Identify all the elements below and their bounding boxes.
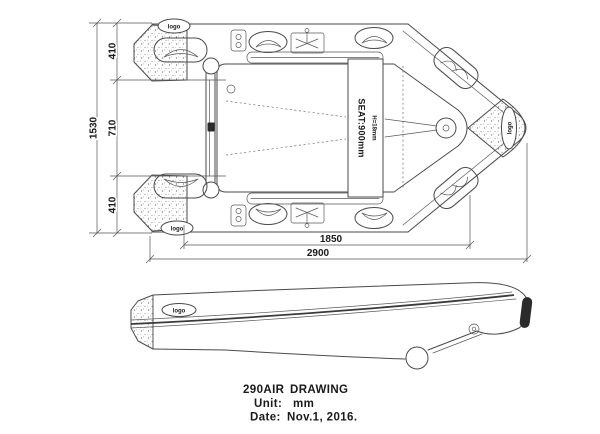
- dim-label-overall-beam: 1530: [89, 116, 100, 139]
- bow-ring-outer: [436, 118, 456, 138]
- bow-ring-inner: [443, 125, 449, 131]
- grab-handle-seatside-bottom: [355, 208, 393, 229]
- seat-bench: SEAT:900mm H=18mm: [348, 59, 383, 197]
- bow-handle-top: [430, 43, 482, 92]
- side-tube-bottom-edge: [153, 349, 405, 359]
- logo-text-top: logo: [168, 25, 181, 31]
- title-block: 290AIR DRAWING Unit: mm Date: Nov.1, 201…: [243, 384, 357, 424]
- side-bow-underside: [428, 328, 519, 350]
- oarlock-top: [231, 30, 246, 51]
- boat-technical-drawing: logo: [0, 0, 600, 434]
- grab-handle-mid-top: [249, 32, 287, 53]
- dim-label-overall-length: 2900: [307, 248, 330, 259]
- drawing-type: DRAWING: [290, 384, 348, 396]
- logo-text-bottom: logo: [171, 227, 184, 233]
- side-view: logo: [131, 283, 533, 369]
- date-value: Nov.1, 2016.: [287, 412, 357, 424]
- date-label: Date:: [250, 412, 281, 424]
- grab-handle-seatside-top: [355, 28, 393, 49]
- bow-rope-handle: [519, 297, 533, 329]
- drawing-model: 290AIR: [243, 384, 285, 396]
- air-valve-bottom: [291, 203, 324, 228]
- dim-label-tube-bottom: 410: [108, 196, 119, 213]
- air-valve-top: [291, 29, 324, 54]
- floor-line-lower-dashed: [226, 139, 346, 155]
- transom-knob-top: [203, 58, 219, 74]
- floor-line-upper: [385, 119, 437, 126]
- bow-handle-bottom: [430, 163, 482, 212]
- side-stern-cone: [131, 295, 153, 349]
- cockpit-boundary: [217, 64, 467, 192]
- floor-line-lower: [385, 130, 437, 137]
- unit-label: Unit:: [254, 398, 282, 410]
- dim-label-inner-length: 1850: [320, 234, 343, 245]
- side-logo-text: logo: [173, 309, 186, 315]
- floor-line-upper-dashed: [226, 101, 346, 117]
- side-valve-inner: [472, 327, 476, 331]
- unit-value: mm: [293, 398, 314, 410]
- drain-valve: [227, 85, 235, 93]
- bow-logo-text: logo: [508, 121, 514, 134]
- transom-knob-bottom: [203, 182, 219, 198]
- drawing-sheet: logo: [0, 0, 600, 434]
- side-bow-underside-seam: [433, 334, 482, 353]
- dim-label-inner-beam: 710: [108, 119, 119, 136]
- seat-label: SEAT:900mm: [357, 98, 367, 157]
- keel-end-roller: [406, 347, 428, 369]
- transom-clamp: [208, 123, 215, 132]
- side-tube-top-edge: [153, 283, 529, 328]
- stern-cone-top: [134, 25, 187, 81]
- oarlock-bottom: [231, 205, 246, 226]
- grab-handle-mid-bottom: [249, 204, 287, 225]
- top-view: logo: [134, 19, 526, 235]
- dim-label-tube-top: 410: [108, 42, 119, 59]
- seat-sub-label: H=18mm: [370, 115, 376, 140]
